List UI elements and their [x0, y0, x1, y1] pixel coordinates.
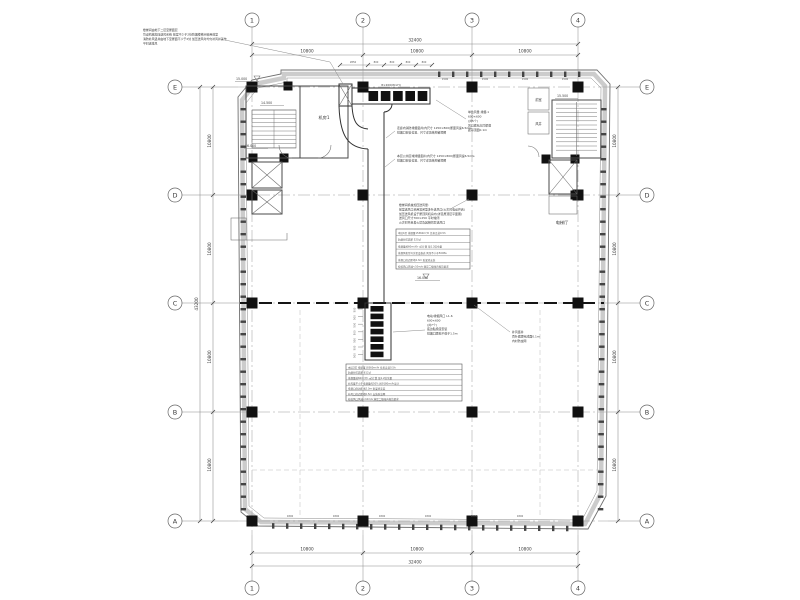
note-pressurize-3: 送风口尺寸700×250 平时常闭	[399, 215, 440, 220]
grid-bubble-label-top-1: 1	[250, 16, 254, 24]
grille	[393, 91, 403, 101]
building-outline	[238, 70, 610, 529]
zone2-row-6: 校核风口风速<10m/s 满足二级噪声规范要求	[348, 397, 399, 401]
column	[573, 407, 584, 418]
column	[358, 82, 369, 93]
window-dim-bottom: 1800	[471, 514, 478, 518]
building-shell	[238, 70, 610, 529]
zone1-row-5: 校核风口风速<10m/s 满足二级噪声规范要求	[398, 265, 449, 269]
zone2-row-4: 排烟口底边距地2.3m 贴梁底安装	[348, 387, 386, 391]
column	[467, 190, 478, 201]
front-room-label: 前室	[535, 97, 541, 102]
note-topleft-2: 消防补风竖井由地下至屋面不少于2处 加压送风时均匀补风并兼作	[143, 36, 227, 41]
note-outlet-4: 排烟口距地不低于1.5m	[427, 331, 458, 336]
dim-bay-top-3: 10800	[518, 49, 532, 54]
grille	[371, 352, 384, 358]
grid-bubble-label-top-2: 2	[361, 16, 365, 24]
zone2-row-0: 本层2区 排烟量18360m³/h 负担走道0.5h	[348, 365, 396, 369]
grid-bubble-label-bottom-3: 3	[470, 584, 474, 592]
grille	[381, 91, 391, 101]
window-dim-top: 1500	[442, 77, 449, 81]
zone2-row-5: 补风口底边距地0.5m 安装防虫网	[348, 392, 386, 396]
louver-step-dim: 500	[353, 315, 357, 320]
grid-bubble-label-bottom-4: 4	[576, 584, 580, 592]
grid-bubble-label-top-3: 3	[470, 16, 474, 24]
column	[247, 516, 258, 527]
grid-bubble-label-left-A: A	[173, 517, 178, 525]
note-makeup-2: 内衬防虫网	[512, 338, 527, 343]
dim-mini-2: 800	[390, 60, 395, 64]
dim-mini-0: 2850	[350, 60, 357, 64]
elevation-stair-bottom: 16.000	[245, 144, 256, 148]
louver-step-dim: 500	[353, 307, 357, 312]
dim-total-bottom: 32400	[408, 560, 422, 565]
dim-bay-right-3: 10800	[612, 350, 617, 364]
column	[358, 407, 369, 418]
window-dim-bottom: 1800	[333, 514, 340, 518]
note-pressurize-4: 火灾时开启着火层及其相邻层送风口	[399, 220, 445, 225]
louver-step-dim: 500	[353, 322, 357, 327]
note-outlet-3: 底边贴梁底安装	[427, 326, 447, 331]
window-dim-bottom: 1800	[517, 514, 524, 518]
zone1-row-0: 本层1区 排烟量15360m³/h 负担走道0.5h	[398, 231, 446, 235]
grille	[405, 91, 415, 101]
grid-bubble-label-left-C: C	[173, 299, 178, 307]
grille	[418, 91, 428, 101]
note-public-0: 本层公共区域排烟竖井(内尺寸 1250×800)断面风速6.5m/s	[397, 153, 475, 158]
dim-bay-right-4: 10800	[612, 458, 617, 472]
grille	[371, 344, 384, 350]
dim-mini-3: 800	[406, 60, 411, 64]
grid-bubble-label-top-4: 4	[576, 16, 580, 24]
elevator-hall-label: 电梯厅	[556, 219, 569, 226]
note-topleft-0: 楼梯间由地下二层至屋面层	[143, 27, 178, 32]
louver-step-dim: 500	[353, 330, 357, 335]
note-louver-2: (共5个)	[468, 118, 478, 123]
note-topleft-3: 平时送排风	[143, 41, 158, 46]
floor-plan-sheet: 11223344EEDDCCBBAA 32400 10800 10800 108…	[0, 0, 800, 600]
zone1-row-4: 排烟口底边距地2.3m 贴梁底安装	[398, 258, 436, 262]
grid-bubble-label-right-E: E	[645, 83, 649, 91]
window-dim-top: 1500	[482, 77, 489, 81]
elevation-stair-mid: 14.500	[261, 101, 272, 105]
dim-mini-1: 800	[374, 60, 379, 64]
dim-bay-bottom-2: 10800	[410, 547, 424, 552]
elevation-right-stair: 15.500	[557, 94, 568, 98]
window-dim-top: 1500	[522, 77, 529, 81]
grid-bubble-label-left-E: E	[173, 83, 177, 91]
grid-bubble-label-right-D: D	[644, 191, 649, 199]
column	[358, 190, 369, 201]
zone1-row-3: 排烟风机型号详见设备表 风压不小于500Pa	[398, 251, 447, 255]
column	[247, 407, 258, 418]
dim-bay-top-1: 10800	[300, 49, 314, 54]
air-shaft-label: 风井	[535, 121, 541, 126]
note-outlet-2: (共7个)	[427, 322, 437, 327]
zone2-row-1: 防烟分区面积 612㎡	[348, 371, 372, 375]
column	[573, 298, 584, 309]
zone1-row-2: 排烟量按60m³/(h·㎡)计算 取1.2倍余量	[398, 244, 443, 248]
zone2-row-3: 补风量不小于排烟量的50% 按9180m³/h设计	[348, 381, 400, 385]
column	[247, 298, 258, 309]
note-topleft-1: 均设机械加压送风系统 前室不少于2处防烟楼梯间合用前室	[143, 32, 218, 37]
grille	[369, 91, 379, 101]
note-louver-0: 单台风量 排烟-1	[468, 109, 489, 114]
floor-plan-drawing: 11223344EEDDCCBBAA 32400 10800 10800 108…	[0, 0, 800, 600]
note-louver-4: 距吊顶面0.1m	[468, 128, 487, 132]
louver-step-dim: 500	[353, 345, 357, 350]
window-dim-bottom: 1800	[379, 514, 386, 518]
grid-bubble-label-right-C: C	[645, 299, 650, 307]
note-louver-1: 600×600	[468, 115, 482, 119]
grid-bubble-label-bottom-1: 1	[250, 584, 254, 592]
note-outlet-0: 电动/排烟风口 L1-6	[427, 313, 453, 318]
grid-bubble-label-left-B: B	[173, 408, 177, 416]
dim-bay-top-2: 10800	[410, 49, 424, 54]
dim-bay-left-2: 10800	[207, 242, 212, 256]
louver-size-label: 8×200(W×H)	[381, 83, 401, 87]
note-pressurize-0: 楼梯间机械加压送风量:	[399, 202, 429, 207]
column	[573, 516, 584, 527]
column	[573, 82, 584, 93]
window-dim-bottom: 1800	[425, 514, 432, 518]
zone1-row-1: 防烟分区面积 520㎡	[398, 238, 422, 242]
grille	[371, 314, 384, 320]
note-public-1: 排烟口安装位置、尺寸详见结构留洞图	[397, 158, 446, 163]
grille	[371, 329, 384, 335]
grille	[371, 306, 384, 312]
grid-bubble-label-left-D: D	[172, 191, 177, 199]
zone2-row-2: 排烟量按60m³/(h·㎡)计算 取1.2倍余量	[348, 376, 393, 380]
dim-bay-right-2: 10800	[612, 242, 617, 256]
dim-total-left: 43200	[194, 297, 199, 311]
dim-total-top: 32400	[408, 38, 422, 43]
note-outlet-1: 600×600	[427, 318, 441, 322]
column	[467, 298, 478, 309]
dim-mini-4: 800	[422, 60, 427, 64]
window-dim-top: 1500	[562, 77, 569, 81]
note-louver-3: 风口底标高同梁底	[468, 123, 491, 128]
grid-bubble-label-bottom-2: 2	[361, 584, 365, 592]
column	[467, 82, 478, 93]
note-corridor-1: 排烟口安装位置、尺寸详见结构留洞图	[397, 130, 446, 135]
louver-step-dim: 500	[353, 338, 357, 343]
dim-bay-left-1: 10800	[207, 134, 212, 148]
note-corridor-0: 走廊内消防排烟竖井(内尺寸 1250×800)断面风速6.5m/s	[397, 125, 472, 130]
grille	[371, 321, 384, 327]
column	[358, 516, 369, 527]
elevation-stair-top: 15.000	[236, 77, 247, 81]
grille	[371, 336, 384, 342]
grid-bubble-label-right-B: B	[645, 408, 649, 416]
fan-room-label: 机房1	[318, 114, 329, 121]
dim-bay-bottom-3: 10800	[518, 547, 532, 552]
window-dim-bottom: 1800	[287, 514, 294, 518]
note-pressurize-1: 前室送风口采用常闭型多叶送风口(火灾时电动开启)	[399, 206, 465, 211]
dim-bay-left-3: 10800	[207, 350, 212, 364]
dim-bay-bottom-1: 10800	[300, 547, 314, 552]
louver-grilles-vertical	[371, 306, 384, 357]
column	[247, 82, 258, 93]
louver-step-dim: 500	[353, 353, 357, 358]
note-makeup-1: 百叶底距完成面0.1m	[512, 333, 540, 338]
louver-grilles-top	[369, 91, 428, 101]
dim-bay-left-4: 10800	[207, 458, 212, 472]
column	[467, 407, 478, 418]
dim-bay-right-1: 10800	[612, 134, 617, 148]
note-makeup-0: 补风竖井	[512, 329, 524, 334]
note-pressurize-2: 加压送风机设于屋顶风机房内(详见屋顶层平面图)	[399, 211, 462, 216]
grid-bubble-label-right-A: A	[645, 517, 650, 525]
